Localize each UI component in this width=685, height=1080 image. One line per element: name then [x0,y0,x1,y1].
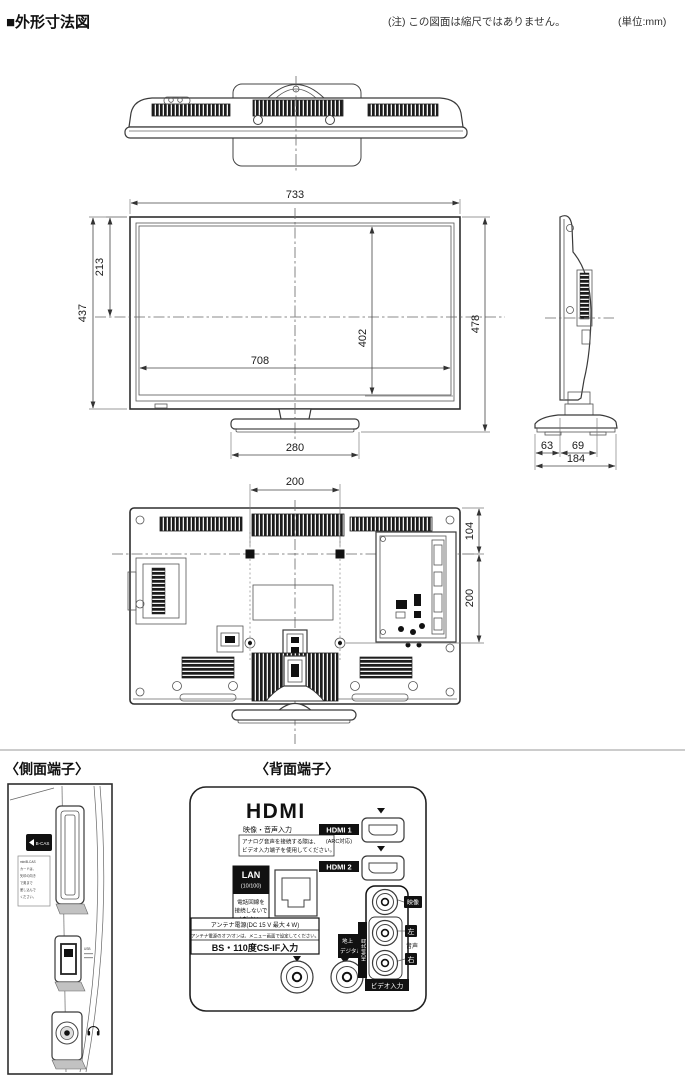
rear-stand-area [252,653,338,701]
rca-jack-audio-right [373,951,398,976]
vesa-bolt-top-left [246,550,255,559]
dim-screen-height: 402 [357,329,369,347]
rca-jack-audio-left [373,921,398,946]
side-view: 63 69 184 [535,216,617,470]
svg-text:カードは、: カードは、 [20,866,36,871]
dim-top-offset: 104 [464,522,476,540]
dim-stand-width: 280 [286,442,304,454]
hdmi-shared-label: HDMI共用 [361,939,368,962]
side-terminal-title: 〈側面端子〉 [5,761,89,777]
bcas-note: miniB-CAS カードは、 矢印の向き で奥まで 差し込んで ください。 [18,856,50,906]
lan-sub: (10/100) [241,884,262,890]
dim-depth-back: 69 [572,440,584,452]
lan-jack [275,870,317,916]
unit-note: (単位:mm) [618,15,666,28]
top-vent-right [368,104,438,116]
top-view [125,76,467,173]
vesa-bolt-top-right [336,550,345,559]
side-terminal-detail: B-CAS miniB-CAS カードは、 矢印の向き で奥まで 差し込んで く… [8,784,112,1074]
rear-vent-top-center [252,514,344,536]
dim-vesa-width: 200 [286,476,304,488]
rear-vent-bottom-right [360,657,412,678]
dim-width: 733 [286,189,304,201]
rear-vent-bottom-left [182,657,234,678]
rear-vent-top-left [160,517,242,531]
left-jack-label: 左 [408,927,415,936]
svg-text:電話回線を: 電話回線を [237,898,265,906]
rear-terminal-detail: HDMI 映像・音声入力 アナログ音声を接続する際は、 ビデオ入力端子を使用して… [190,787,426,1011]
dim-vesa-height: 200 [464,589,476,607]
svg-text:差し込んで: 差し込んで [20,887,36,892]
antenna-note-box: アンテナ電源(DC 15 V 最大 4 W) アンテナ電源のオフ/オンは、メニュ… [191,918,319,954]
bcas-card-slot [56,806,88,914]
hdmi1-label: HDMI 1 [326,826,351,835]
svg-text:接続しないで: 接続しないで [235,907,268,915]
antenna-menu-note: アンテナ電源のオフ/オンは、メニュー画面で設定してください。 [191,933,319,940]
dim-depth-total: 184 [567,453,585,465]
dim-screen-width: 708 [251,355,269,367]
lan-label: LAN [242,870,261,880]
av-input-label: 映像・音声入力 [243,825,292,834]
rear-terminal-title: 〈背面端子〉 [255,761,339,777]
top-vent-center [253,100,343,116]
svg-text:地上: 地上 [342,937,354,945]
diagram-canvas: ■外形寸法図 (注) この図面は縮尺ではありません。 (単位:mm) [0,0,685,1080]
dim-depth-front: 63 [541,440,553,452]
rear-vent-top-right [350,517,432,531]
svg-text:アナログ音声を接続する際は、: アナログ音声を接続する際は、 [242,838,319,846]
rear-stand-base [232,710,356,720]
hdmi1-sub: (ARC対応) [326,837,352,845]
svg-text:ビデオ入力端子を使用してください。: ビデオ入力端子を使用してください。 [242,846,335,854]
svg-text:miniB-CAS: miniB-CAS [20,860,36,864]
svg-text:B-CAS: B-CAS [36,841,50,846]
bcas-label: B-CAS [26,834,52,851]
scale-note: (注) この図面は縮尺ではありません。 [388,15,566,28]
rear-terminal-recess [376,532,456,648]
svg-text:ください。: ください。 [20,894,36,899]
video-jack-label: 映像 [407,899,419,907]
bs-cs-input-label: BS・110度CS-IF入力 [212,942,299,953]
video-input-label: ビデオ入力 [371,981,404,990]
antenna-power-note: アンテナ電源(DC 15 V 最大 4 W) [211,921,299,929]
dim-height: 437 [77,304,89,322]
svg-text:で奥まで: で奥まで [20,880,33,885]
dim-top-to-center: 213 [94,258,106,276]
audio-label: 音声 [406,942,418,950]
rear-view: 200 104 200 [112,476,484,744]
usb-label: USB [84,947,91,951]
dimension-diagram-page: ■外形寸法図 (注) この図面は縮尺ではありません。 (単位:mm) [0,0,685,1080]
header: ■外形寸法図 (注) この図面は縮尺ではありません。 (単位:mm) [6,13,666,31]
front-view: 733 437 213 478 402 708 280 [77,189,505,459]
svg-text:矢印の向き: 矢印の向き [20,873,36,878]
analog-audio-note: アナログ音声を接続する際は、 ビデオ入力端子を使用してください。 [239,835,335,856]
rca-jack-video [373,890,398,915]
right-jack-label: 右 [408,955,415,964]
hdmi-logo: HDMI [246,800,306,823]
hdmi2-label: HDMI 2 [326,863,351,872]
page-title: ■外形寸法図 [6,13,90,31]
dim-total-height: 478 [470,315,482,333]
side-stand-base [535,415,617,428]
top-vent-left [152,104,230,116]
